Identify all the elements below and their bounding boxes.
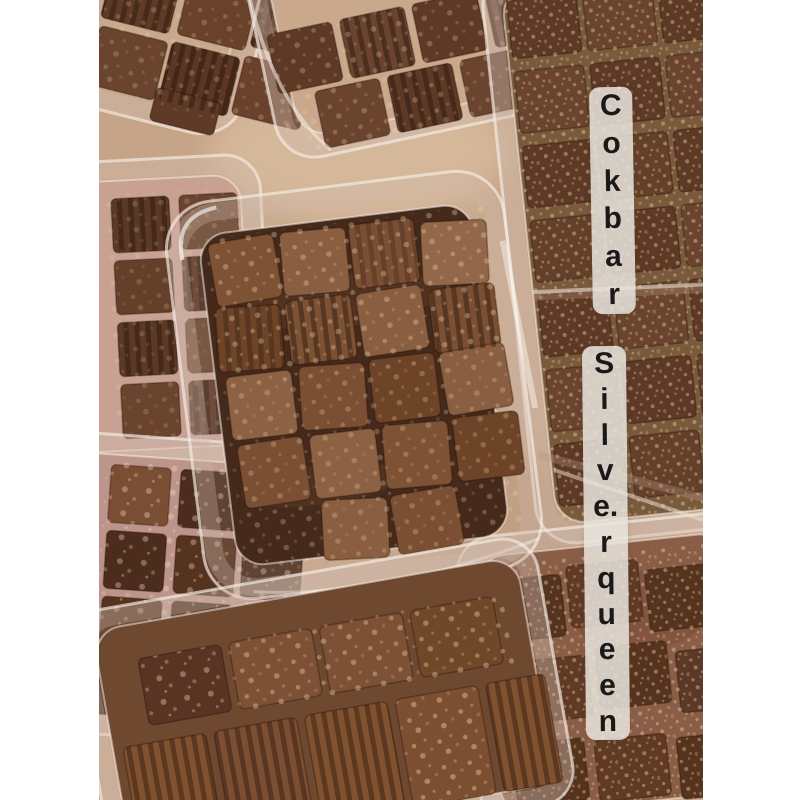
label-letter: C	[600, 91, 622, 121]
label-letter: e.	[593, 492, 618, 522]
label-letter: n	[599, 707, 618, 737]
label-letter: r	[600, 528, 612, 558]
label-letter: v	[597, 456, 614, 486]
label-letter: k	[604, 166, 621, 196]
screenshot-canvas: C o k b a r S i l v e. r q u e e n	[0, 0, 800, 800]
label-letter: o	[602, 129, 621, 159]
label-letter: a	[605, 242, 622, 272]
product-label-silverqueen: S i l v e. r q u e e n	[582, 346, 630, 740]
label-letter: u	[597, 599, 616, 629]
label-letter: S	[594, 349, 614, 379]
label-letter: l	[601, 420, 610, 450]
label-letter: i	[600, 385, 609, 415]
label-letter: e	[599, 671, 616, 701]
label-letter: b	[603, 204, 622, 234]
product-label-cokbar: C o k b a r	[589, 87, 636, 315]
label-letter: e	[599, 635, 616, 665]
label-letter: r	[608, 280, 620, 310]
label-letter: q	[597, 564, 616, 594]
